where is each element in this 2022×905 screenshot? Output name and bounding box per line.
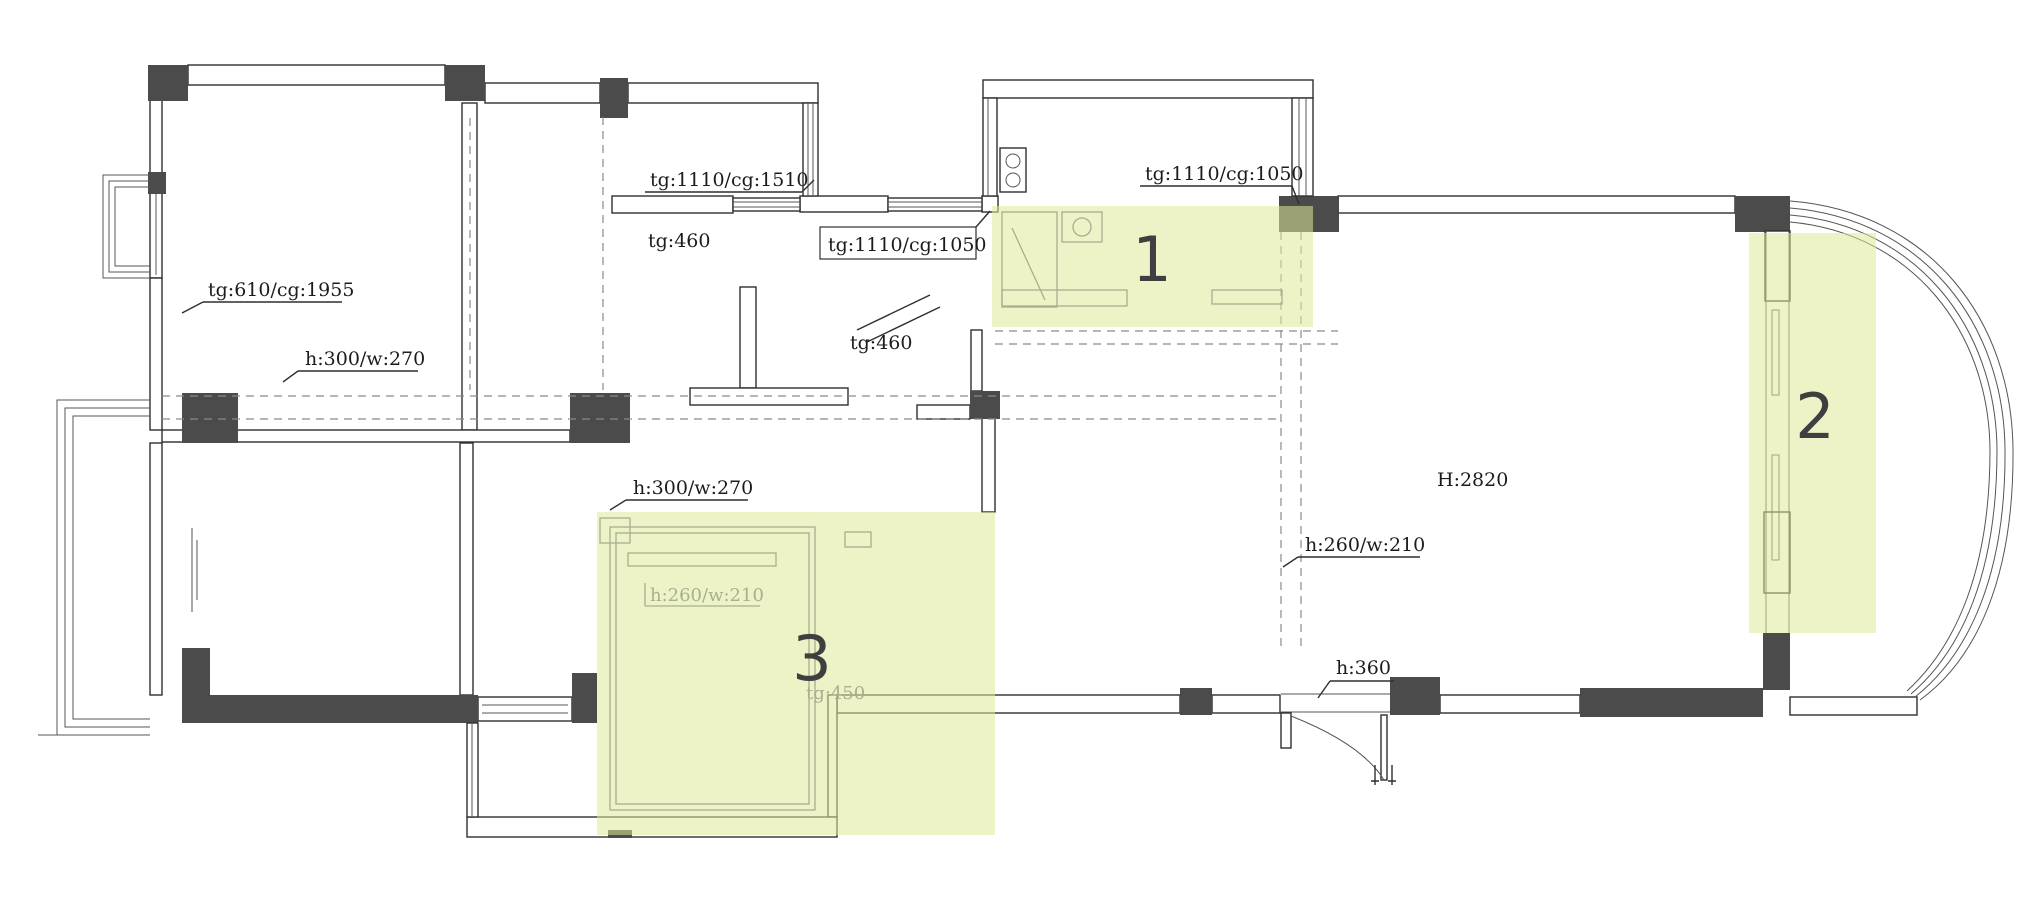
annotation-entry-beam: h:360 [1318,657,1394,698]
annotation-ceiling-height: H:2820 [1437,469,1508,491]
annotation-region3-sill: tg:450 [806,683,865,704]
annotation-beam-left2: h:300/w:270 [610,477,753,510]
annotation-label: h:300/w:270 [633,477,753,499]
annotation-label: tg:1110/cg:1050 [828,234,987,256]
annotation-beam-faint: h:260/w:210 [650,585,764,606]
entry-door [1281,694,1396,785]
annotation-kitchen-window: tg:1110/cg:1050 [1140,163,1304,204]
annotation-hall-sill: tg:460 [850,332,912,354]
annotation-bath-window: tg:1110/cg:1510 [645,169,814,192]
region-2-marker: 2 [1795,380,1834,453]
floor-plan-stage: 1 2 3 tg:610/cg:1955 h:300/w:270 tg:1110… [0,0,2022,905]
annotation-beam-left: h:300/w:270 [283,348,425,382]
highlight-regions [597,206,1876,835]
floor-plan-canvas: 1 2 3 tg:610/cg:1955 h:300/w:270 tg:1110… [0,0,2022,905]
annotation-balcony-door: tg:610/cg:1955 [182,279,354,313]
annotation-label: h:360 [1336,657,1391,679]
region-1-marker: 1 [1132,223,1171,296]
annotation-label: h:300/w:270 [305,348,425,370]
annotation-label: tg:1110/cg:1510 [650,169,809,191]
annotation-bath-sill: tg:460 [648,230,710,252]
annotation-hall-window: tg:1110/cg:1050 [820,211,990,259]
annotation-label: tg:1110/cg:1050 [1145,163,1304,185]
annotation-label: h:260/w:210 [1305,534,1425,556]
annotation-label: tg:610/cg:1955 [208,279,354,301]
annotation-beam-right: h:260/w:210 [1283,534,1425,567]
stove-icon [1000,148,1026,192]
